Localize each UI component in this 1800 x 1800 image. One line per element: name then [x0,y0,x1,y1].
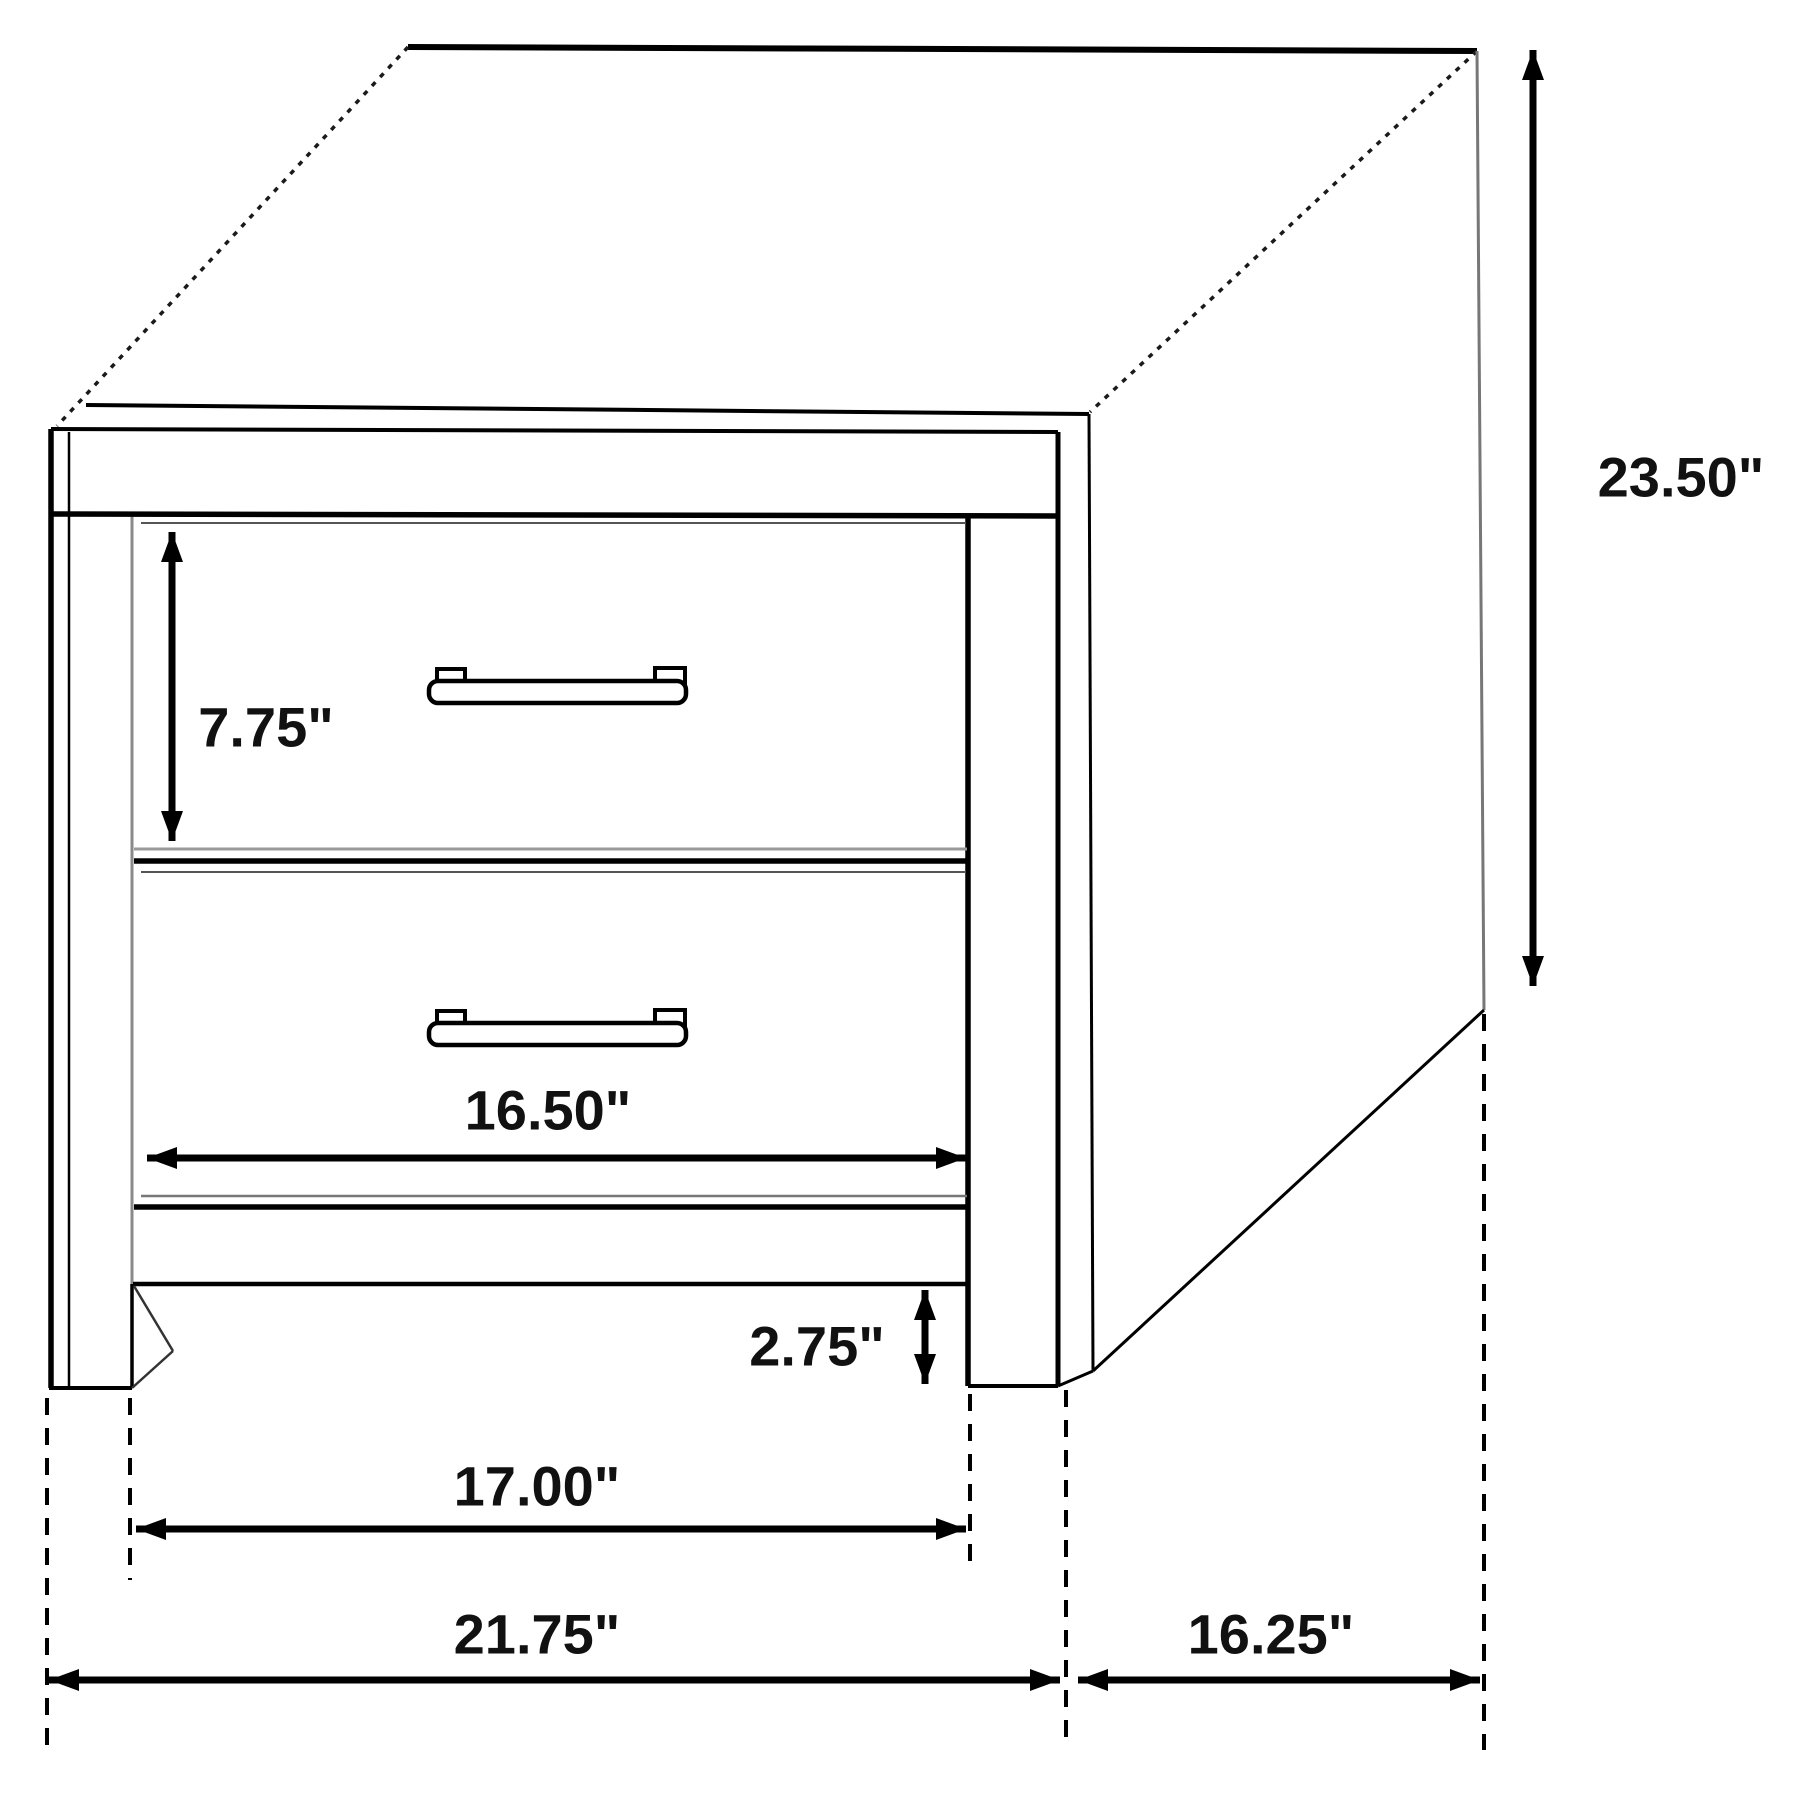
front-frame [49,429,1058,1388]
dim-label-leg-height: 2.75" [749,1314,885,1379]
drawer-handle-icon [429,668,686,703]
dim-label-base-width: 17.00" [454,1454,621,1519]
dim-label-overall-height: 23.50" [1598,445,1765,510]
dimension-diagram: 23.50" 7.75" 16.50" 2.75" 17.00" 21.75" … [0,0,1800,1800]
dim-label-drawer-height: 7.75" [198,695,334,760]
dim-label-overall-width: 21.75" [454,1602,621,1667]
drawer-handle-icon [429,1010,686,1045]
drawer-top [134,523,967,861]
dim-label-drawer-width: 16.50" [465,1078,632,1143]
side-panel [1089,51,1484,1371]
legs [49,1286,1093,1388]
dim-label-overall-depth: 16.25" [1188,1602,1355,1667]
dimension-arrows [49,50,1533,1680]
nightstand-drawing [0,0,1800,1800]
drawer-bottom [141,872,967,1196]
top-face [57,47,1477,426]
